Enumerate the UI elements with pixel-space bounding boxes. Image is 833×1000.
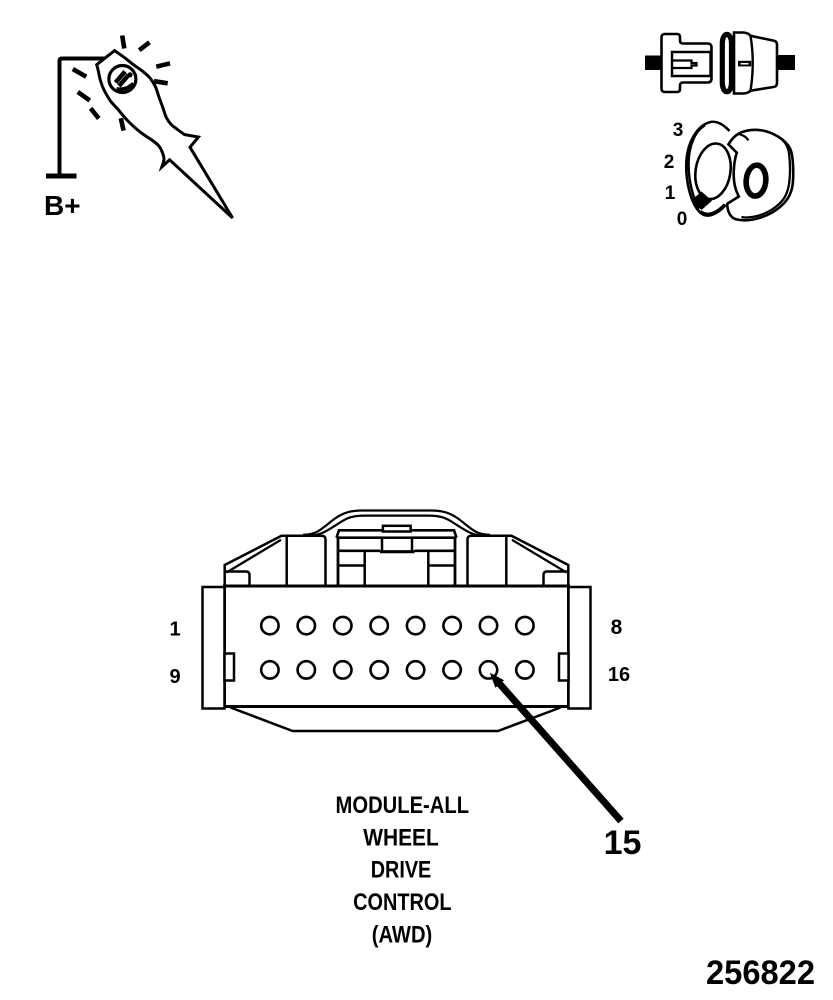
svg-text:9: 9	[169, 666, 180, 688]
svg-text:1: 1	[665, 183, 676, 204]
svg-text:WHEEL: WHEEL	[363, 825, 439, 852]
svg-text:1: 1	[169, 619, 180, 641]
svg-text:2: 2	[664, 152, 675, 173]
svg-text:B+: B+	[44, 190, 81, 221]
svg-text:3: 3	[673, 120, 684, 141]
svg-text:DRIVE: DRIVE	[371, 857, 432, 884]
svg-text:(AWD): (AWD)	[372, 922, 433, 949]
svg-text:CONTROL: CONTROL	[353, 889, 451, 916]
svg-text:16: 16	[608, 664, 630, 686]
svg-text:MODULE-ALL: MODULE-ALL	[336, 792, 470, 819]
svg-text:256822: 256822	[706, 954, 815, 992]
svg-text:0: 0	[677, 209, 688, 230]
svg-text:15: 15	[604, 824, 642, 862]
svg-text:8: 8	[611, 616, 623, 639]
